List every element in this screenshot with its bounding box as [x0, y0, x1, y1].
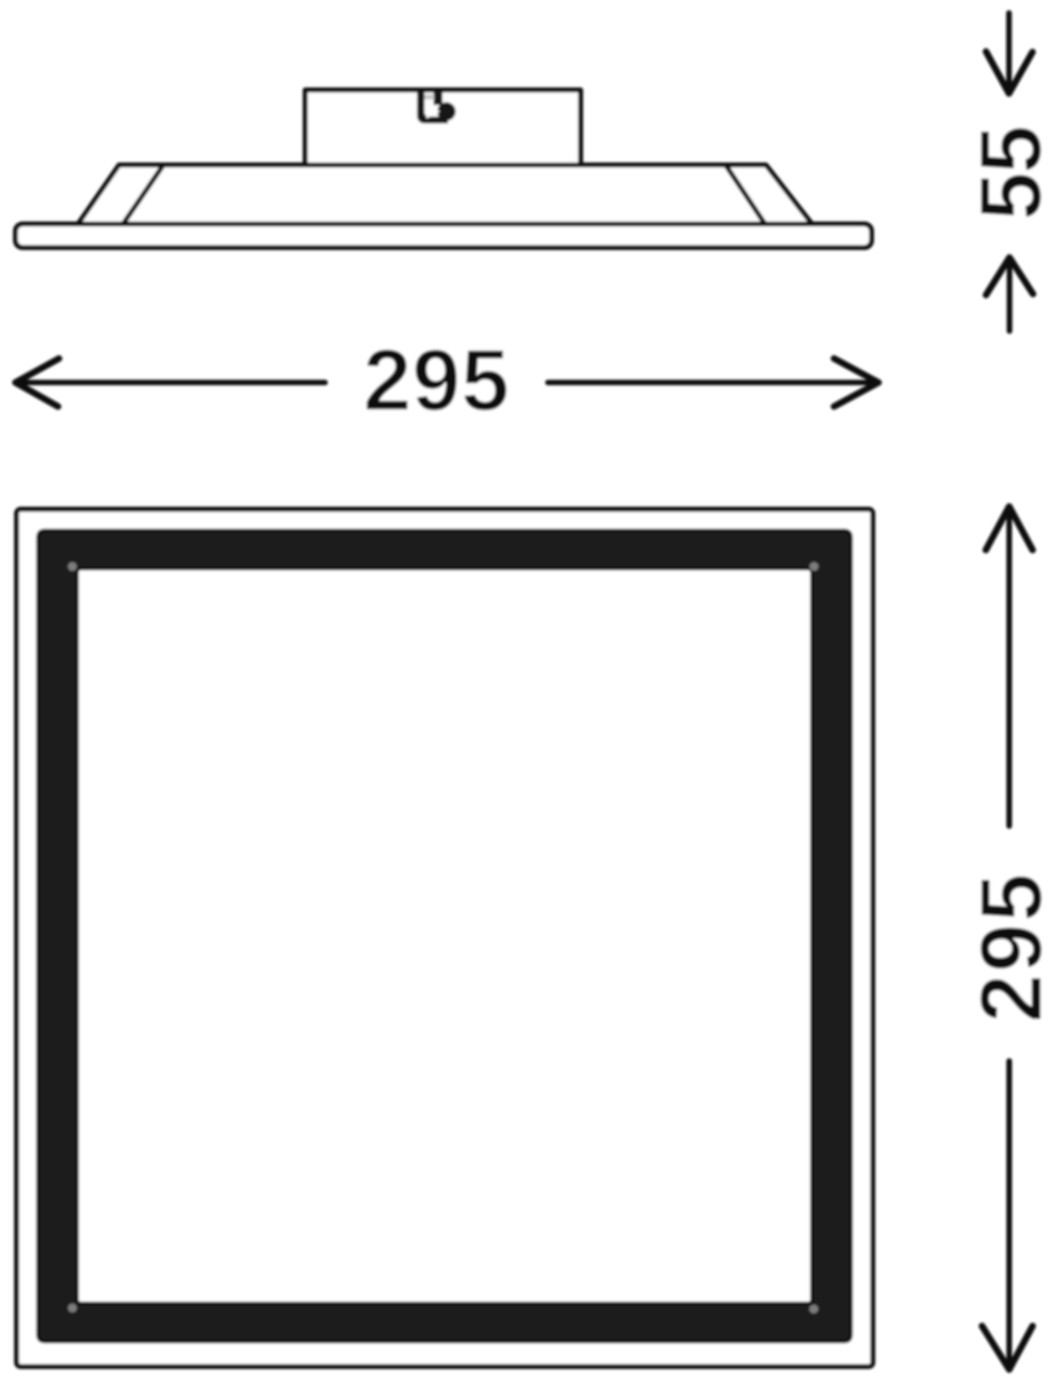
svg-text:295: 295 — [363, 332, 510, 429]
svg-text:295: 295 — [963, 871, 1052, 1022]
svg-text:55: 55 — [963, 127, 1052, 221]
